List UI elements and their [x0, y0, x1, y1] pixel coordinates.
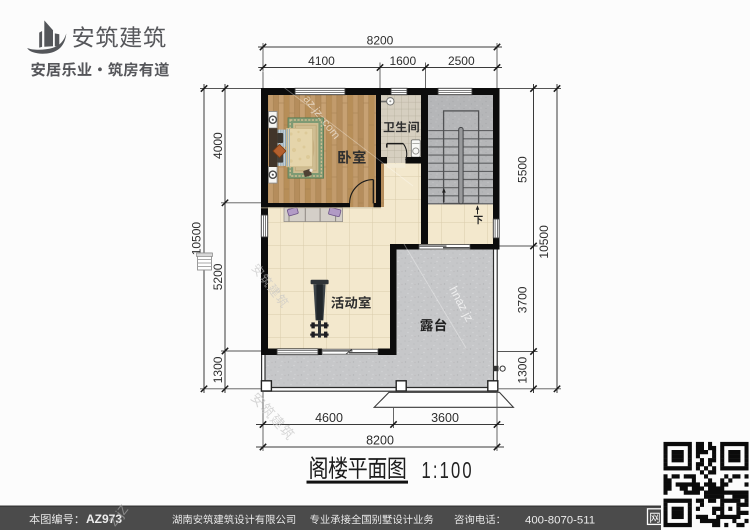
svg-text:8200: 8200: [367, 34, 394, 48]
svg-text:1600: 1600: [389, 54, 416, 68]
svg-text:8200: 8200: [366, 434, 394, 448]
svg-text:1300: 1300: [211, 356, 225, 383]
svg-text:10500: 10500: [190, 222, 204, 256]
svg-text:2500: 2500: [448, 54, 475, 68]
svg-text:5200: 5200: [211, 263, 225, 290]
svg-text:4000: 4000: [211, 132, 225, 159]
svg-text:4600: 4600: [315, 411, 343, 425]
svg-text:1:100: 1:100: [422, 458, 474, 483]
svg-text:3600: 3600: [431, 411, 459, 425]
svg-text:3700: 3700: [516, 286, 530, 313]
svg-text:4100: 4100: [308, 54, 335, 68]
svg-text:1300: 1300: [516, 357, 530, 384]
svg-text:10500: 10500: [537, 225, 551, 259]
svg-text:400-8070-511: 400-8070-511: [525, 514, 595, 526]
svg-text:5500: 5500: [516, 156, 530, 183]
